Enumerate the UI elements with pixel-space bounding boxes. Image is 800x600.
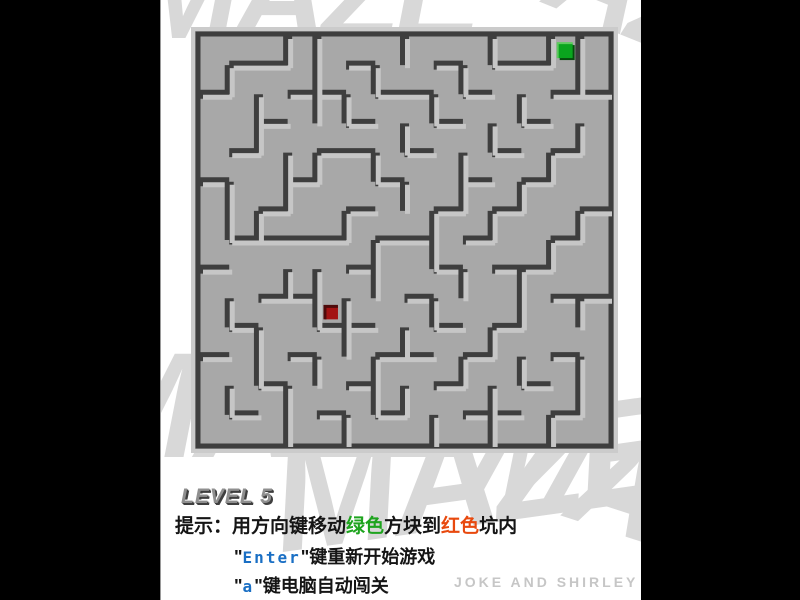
a-key-label: a bbox=[243, 577, 255, 596]
open-quote: " bbox=[234, 576, 243, 596]
red-pit bbox=[325, 306, 338, 319]
credit-text: JOKE AND SHIRLEY bbox=[454, 574, 638, 590]
maze-board[interactable] bbox=[191, 27, 618, 453]
game-window: MAZE MAZE MAZE MAZE MAZE LEVEL 5 提示：用方向键… bbox=[0, 0, 800, 600]
autoplay-text: 键电脑自动闯关 bbox=[263, 576, 389, 596]
maze-graphic bbox=[191, 27, 618, 453]
open-quote: " bbox=[234, 547, 243, 567]
game-content-area: MAZE MAZE MAZE MAZE MAZE LEVEL 5 提示：用方向键… bbox=[160, 0, 641, 600]
close-quote: " bbox=[254, 576, 263, 596]
green-block bbox=[558, 43, 573, 58]
